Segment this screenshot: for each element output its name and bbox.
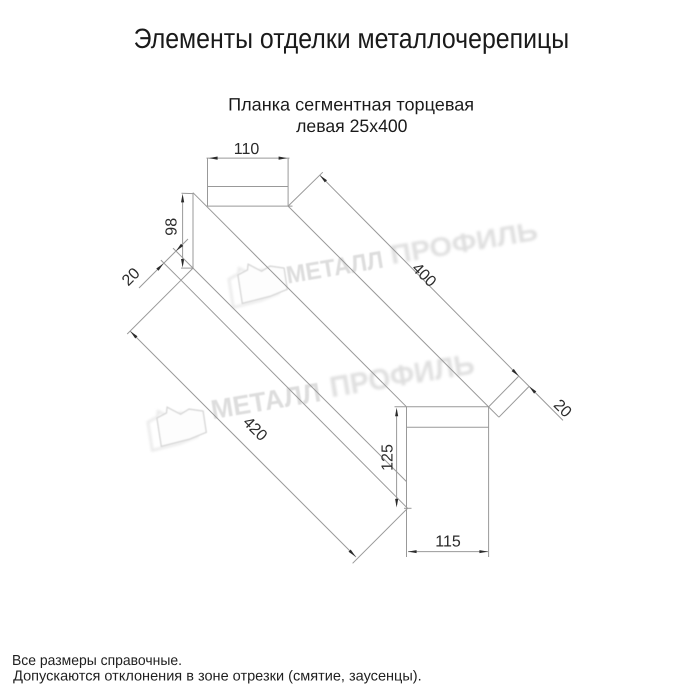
- svg-text:Допускаются отклонения в зоне: Допускаются отклонения в зоне отрезки (с…: [13, 669, 422, 685]
- svg-text:98: 98: [164, 218, 181, 236]
- svg-text:Все размеры справочные.: Все размеры справочные.: [12, 653, 182, 669]
- svg-text:125: 125: [380, 444, 397, 471]
- svg-text:Планка сегментная торцевая: Планка сегментная торцевая: [228, 95, 474, 115]
- svg-text:115: 115: [435, 534, 461, 551]
- svg-text:левая 25х400: левая 25х400: [296, 116, 407, 136]
- svg-text:Элементы отделки металлочерепи: Элементы отделки металлочерепицы: [134, 23, 570, 54]
- svg-text:110: 110: [234, 141, 260, 158]
